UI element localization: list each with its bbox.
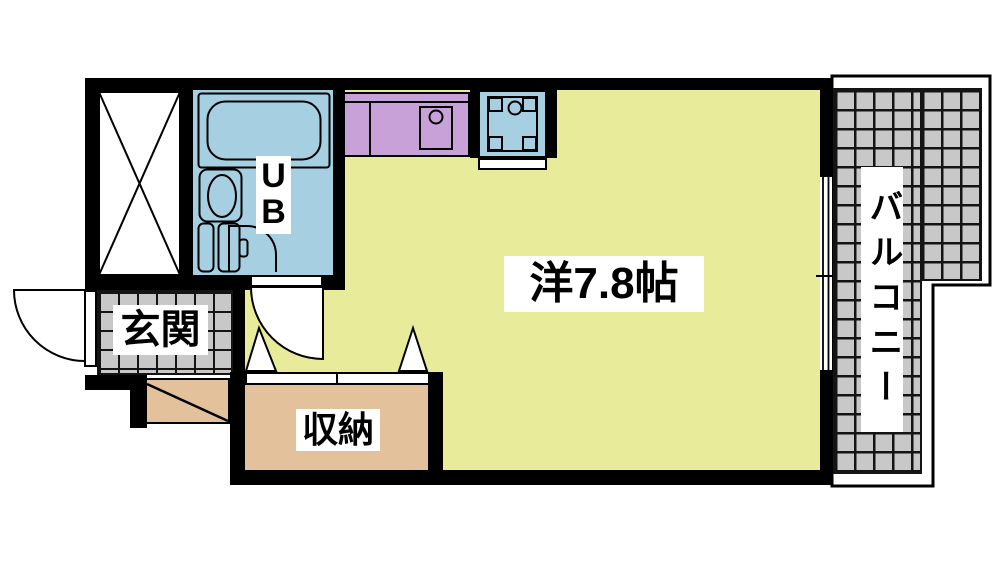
wall-right-upper bbox=[820, 78, 832, 177]
wall-bottom-main bbox=[425, 470, 832, 485]
wall-step-left bbox=[130, 375, 147, 428]
entrance-label: 玄関 bbox=[113, 305, 208, 355]
wall-bath-kitchen bbox=[333, 78, 345, 290]
washer-pan-corner-tr bbox=[522, 97, 537, 112]
washer-niche-threshold bbox=[478, 158, 547, 170]
wall-shaft-right bbox=[182, 90, 193, 277]
wall-left bbox=[85, 78, 97, 290]
balcony-label-text: バルコニー bbox=[864, 189, 900, 414]
storage-label-text: 収納 bbox=[302, 411, 374, 449]
unit-bath-label-b: B bbox=[261, 195, 286, 231]
unit-bath-label-u: U bbox=[261, 159, 286, 195]
washer-pan-corner-br bbox=[522, 136, 537, 151]
main-room-label: 洋7.8帖 bbox=[504, 256, 704, 312]
entrance-door-leaf bbox=[84, 290, 97, 367]
wall-storage-right bbox=[428, 372, 443, 485]
washer-niche-wall-left bbox=[470, 90, 478, 158]
wall-entrance-right bbox=[233, 290, 245, 375]
wall-storage-bottom bbox=[230, 470, 445, 485]
wall-storage-left bbox=[230, 372, 245, 485]
unit-bath-label: U B bbox=[256, 156, 291, 234]
shaft-box bbox=[97, 90, 182, 277]
balcony-tiles-right bbox=[920, 88, 982, 281]
main-room-label-text: 洋7.8帖 bbox=[529, 261, 678, 307]
kitchen-sink bbox=[419, 106, 453, 150]
floorplan: 洋7.8帖 玄関 収納 U B バルコニー bbox=[0, 0, 1000, 562]
wall-top bbox=[85, 78, 832, 90]
entrance-step-area bbox=[145, 378, 230, 424]
storage-label: 収納 bbox=[296, 409, 380, 451]
entrance-label-text: 玄関 bbox=[121, 309, 201, 351]
washer-pan-corner-tl bbox=[488, 97, 503, 112]
balcony-label: バルコニー bbox=[861, 167, 903, 432]
entrance-door-swing bbox=[14, 290, 85, 361]
kitchen-counter-edge-line bbox=[342, 101, 470, 103]
balcony-window bbox=[820, 177, 832, 370]
wall-below-bath-left bbox=[85, 275, 250, 290]
washer-pan-corner-bl bbox=[488, 136, 503, 151]
washer-niche-wall-right bbox=[547, 90, 557, 158]
bath-door-leaf bbox=[250, 275, 323, 287]
kitchen-counter-divider bbox=[369, 101, 371, 157]
wall-right-lower bbox=[820, 370, 832, 485]
closet-door-divider bbox=[336, 372, 338, 385]
main-room-floor-entry-band bbox=[245, 290, 345, 372]
